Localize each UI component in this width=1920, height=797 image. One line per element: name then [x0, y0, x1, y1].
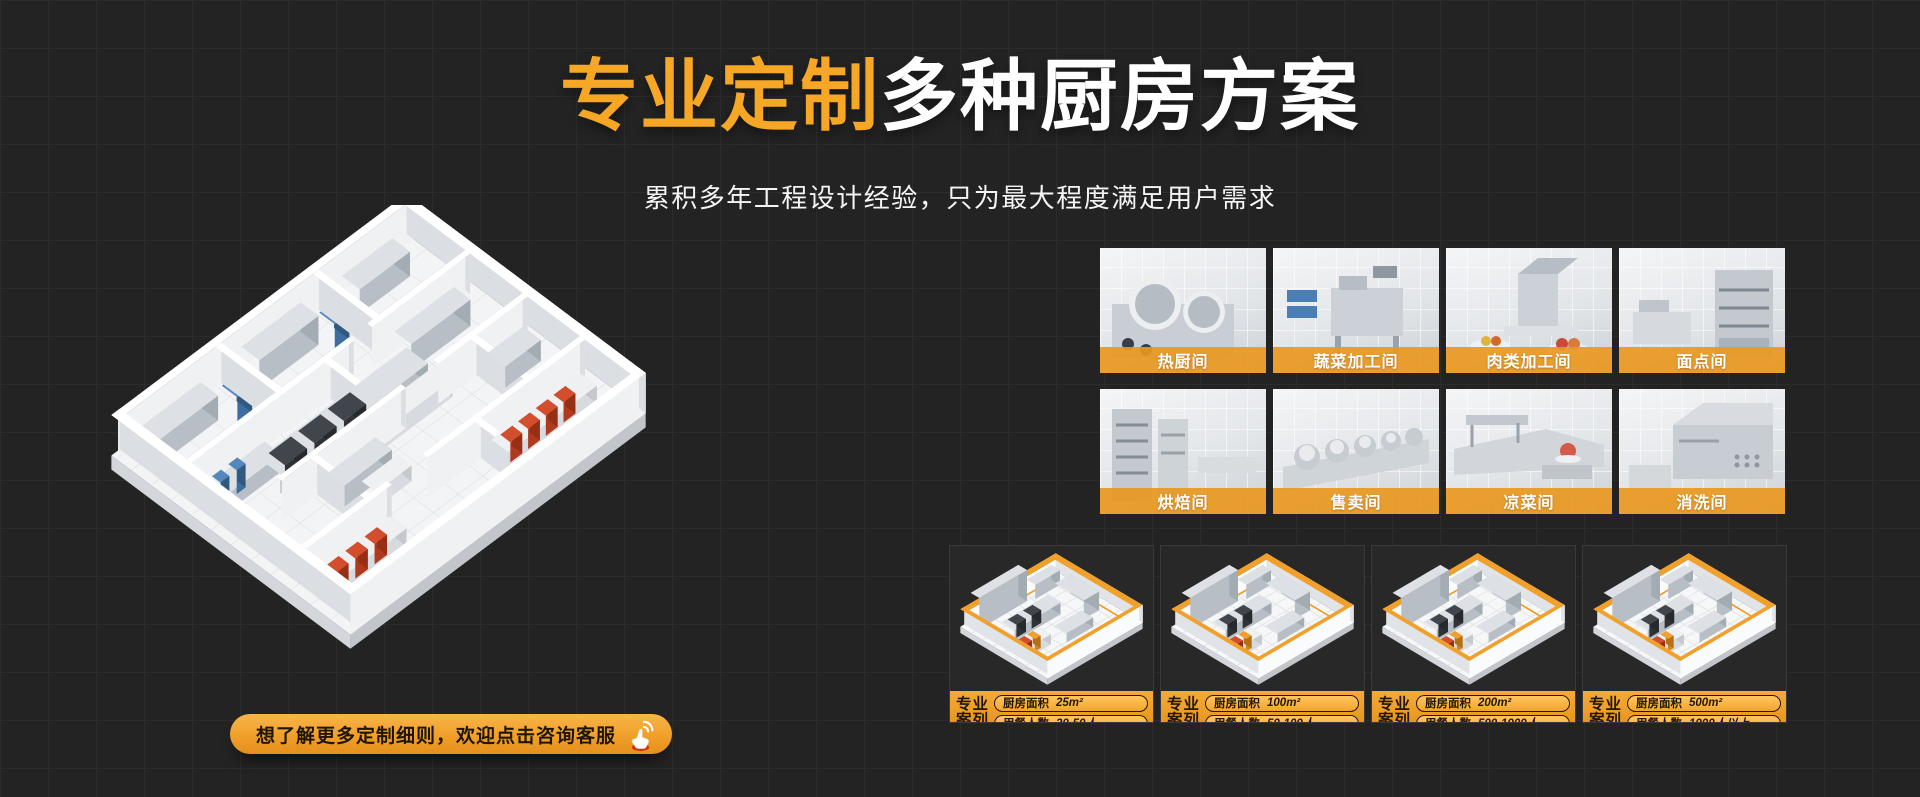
area-pill: 厨房面积 200m²	[1416, 695, 1570, 712]
diners-pill: 用餐人数 50-100人	[1205, 715, 1359, 724]
cta-label: 想了解更多定制细则，欢迎点击咨询客服	[256, 721, 616, 748]
case-illustration	[950, 546, 1153, 691]
room-tile-serving[interactable]: 售卖间	[1273, 389, 1439, 514]
room-tile-meat-processing[interactable]: 肉类加工间	[1446, 248, 1612, 373]
hero-banner: 专业定制多种厨房方案 累积多年工程设计经验，只为最大程度满足用户需求 想了解更多…	[0, 0, 1920, 797]
case-info-strip: 专业 案列 厨房面积 200m² 用餐人数 500-1000人	[1372, 691, 1575, 723]
room-label-band: 凉菜间	[1446, 488, 1612, 514]
case-badge: 专业 案列	[1589, 697, 1622, 723]
case-illustration	[1372, 546, 1575, 691]
kitchen-floorplan-illustration	[85, 205, 665, 662]
room-label-band: 烘焙间	[1100, 488, 1266, 514]
case-info-strip: 专业 案列 厨房面积 500m² 用餐人数 1000人以上	[1583, 691, 1786, 723]
room-tile-dishwashing[interactable]: 消洗间	[1619, 389, 1785, 514]
diners-pill: 用餐人数 1000人以上	[1627, 715, 1781, 724]
case-illustration	[1583, 546, 1786, 691]
page-title: 专业定制多种厨房方案	[0, 52, 1920, 142]
room-label: 烘焙间	[1157, 489, 1208, 513]
area-pill: 厨房面积 500m²	[1627, 695, 1781, 712]
room-tile-hot-kitchen[interactable]: 热厨间	[1100, 248, 1266, 373]
case-info-strip: 专业 案列 厨房面积 25m² 用餐人数 20-50人	[950, 691, 1153, 723]
case-cards-row: 专业 案列 厨房面积 25m² 用餐人数 20-50人	[949, 545, 1787, 723]
room-label: 肉类加工间	[1486, 348, 1571, 372]
case-card-200m2[interactable]: 专业 案列 厨房面积 200m² 用餐人数 500-1000人	[1371, 545, 1576, 723]
room-tile-vegetable-processing[interactable]: 蔬菜加工间	[1273, 248, 1439, 373]
room-label-band: 蔬菜加工间	[1273, 347, 1439, 373]
case-card-500m2[interactable]: 专业 案列 厨房面积 500m² 用餐人数 1000人以上	[1582, 545, 1787, 723]
room-tile-pastry[interactable]: 面点间	[1619, 248, 1785, 373]
case-badge: 专业 案列	[1378, 697, 1411, 723]
consult-cta-button[interactable]: 想了解更多定制细则，欢迎点击咨询客服	[230, 714, 672, 754]
case-badge: 专业 案列	[1167, 697, 1200, 723]
case-info-strip: 专业 案列 厨房面积 100m² 用餐人数 50-100人	[1161, 691, 1364, 723]
diners-pill: 用餐人数 500-1000人	[1416, 715, 1570, 724]
case-illustration	[1161, 546, 1364, 691]
room-label: 凉菜间	[1503, 489, 1554, 513]
room-label: 蔬菜加工间	[1313, 348, 1398, 372]
hand-click-icon	[624, 719, 658, 753]
room-tiles-grid: 热厨间 蔬菜加工间 肉类加工间 面点间 烘焙间 售卖间 凉菜间 消洗间	[1100, 248, 1785, 514]
room-label-band: 售卖间	[1273, 488, 1439, 514]
room-label: 消洗间	[1676, 489, 1727, 513]
room-tile-cold-dishes[interactable]: 凉菜间	[1446, 389, 1612, 514]
room-tile-baking[interactable]: 烘焙间	[1100, 389, 1266, 514]
room-label-band: 热厨间	[1100, 347, 1266, 373]
title-highlight: 专业定制	[560, 52, 880, 140]
case-card-100m2[interactable]: 专业 案列 厨房面积 100m² 用餐人数 50-100人	[1160, 545, 1365, 723]
area-pill: 厨房面积 25m²	[994, 695, 1148, 712]
room-label-band: 面点间	[1619, 347, 1785, 373]
title-rest: 多种厨房方案	[880, 52, 1360, 140]
room-label-band: 肉类加工间	[1446, 347, 1612, 373]
room-label-band: 消洗间	[1619, 488, 1785, 514]
room-label: 面点间	[1676, 348, 1727, 372]
area-pill: 厨房面积 100m²	[1205, 695, 1359, 712]
room-label: 热厨间	[1157, 348, 1208, 372]
room-label: 售卖间	[1330, 489, 1381, 513]
diners-pill: 用餐人数 20-50人	[994, 715, 1148, 724]
case-card-25m2[interactable]: 专业 案列 厨房面积 25m² 用餐人数 20-50人	[949, 545, 1154, 723]
case-badge: 专业 案列	[956, 697, 989, 723]
